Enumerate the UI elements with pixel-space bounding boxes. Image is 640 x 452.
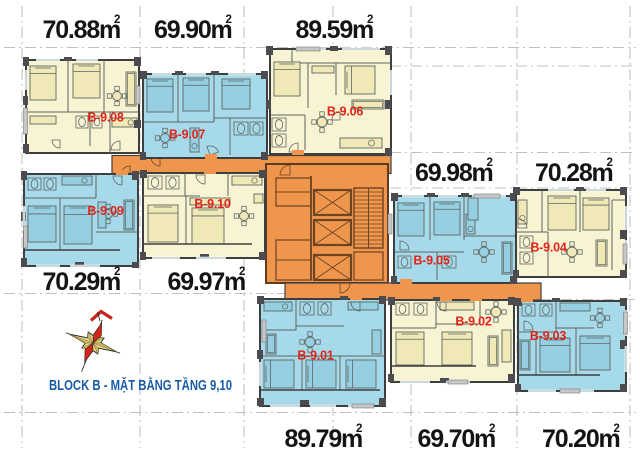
svg-text:69.97m: 69.97m <box>168 268 246 296</box>
svg-text:B-9.06: B-9.06 <box>327 104 364 118</box>
svg-text:70.88m: 70.88m <box>43 16 121 44</box>
svg-text:B-9.05: B-9.05 <box>413 253 450 267</box>
svg-text:B-9.04: B-9.04 <box>530 240 567 254</box>
svg-text:70.28m: 70.28m <box>535 159 613 187</box>
svg-text:2: 2 <box>487 157 493 169</box>
svg-text:2: 2 <box>367 14 373 26</box>
svg-text:2: 2 <box>489 423 495 435</box>
svg-text:2: 2 <box>114 14 120 26</box>
svg-text:2: 2 <box>226 14 232 26</box>
svg-text:B-9.01: B-9.01 <box>297 348 334 362</box>
svg-text:B-9.07: B-9.07 <box>169 127 206 141</box>
svg-text:BLOCK B - MẶT BẰNG TẦNG 9,10: BLOCK B - MẶT BẰNG TẦNG 9,10 <box>49 376 232 394</box>
svg-text:70.20m: 70.20m <box>542 425 620 452</box>
svg-text:2: 2 <box>239 266 245 278</box>
svg-text:B-9.09: B-9.09 <box>87 204 124 218</box>
svg-text:B-9.03: B-9.03 <box>530 329 567 343</box>
svg-text:89.59m: 89.59m <box>296 16 374 44</box>
svg-text:2: 2 <box>356 423 362 435</box>
svg-text:89.79m: 89.79m <box>285 425 363 452</box>
svg-text:2: 2 <box>114 266 120 278</box>
svg-text:69.98m: 69.98m <box>415 159 493 187</box>
svg-text:B-9.08: B-9.08 <box>87 110 124 124</box>
svg-text:2: 2 <box>607 157 613 169</box>
svg-text:B-9.10: B-9.10 <box>194 197 231 211</box>
svg-text:B-9.02: B-9.02 <box>455 314 492 328</box>
svg-text:69.90m: 69.90m <box>154 16 232 44</box>
svg-text:70.29m: 70.29m <box>43 268 121 296</box>
svg-text:69.70m: 69.70m <box>418 425 496 452</box>
svg-text:2: 2 <box>614 423 620 435</box>
